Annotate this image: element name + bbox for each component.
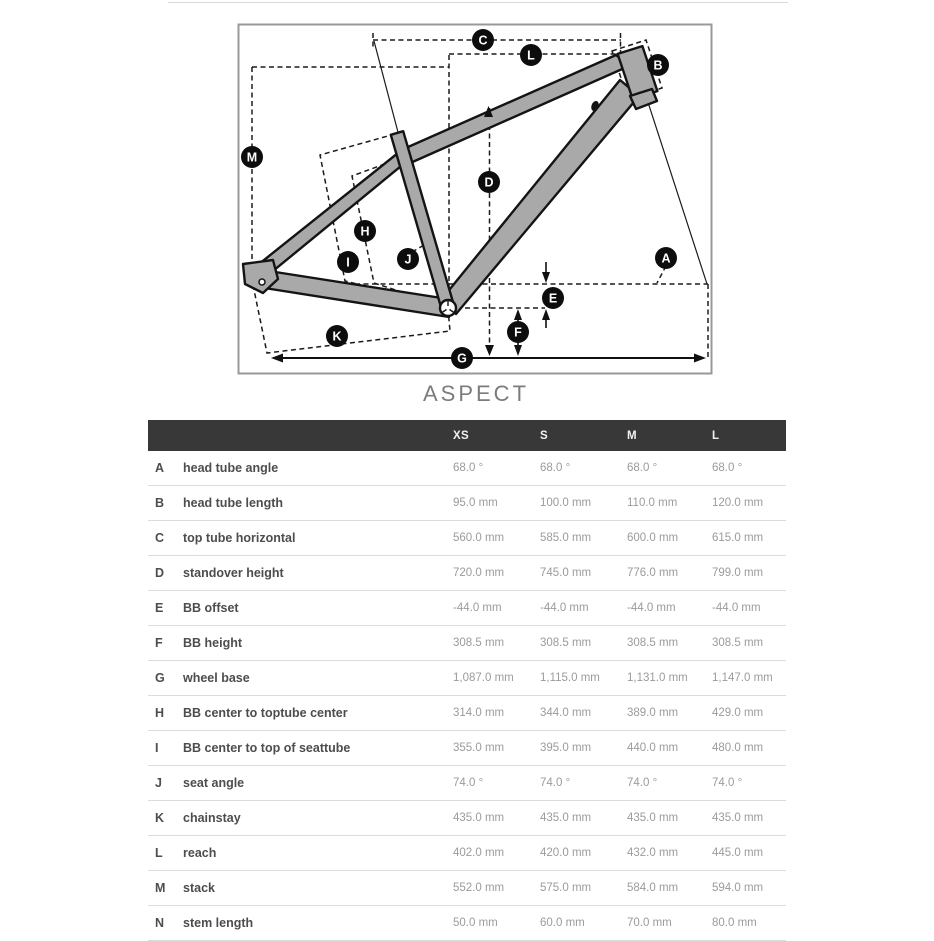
table-row-k: Kchainstay435.0 mm435.0 mm435.0 mm435.0 …: [148, 801, 786, 836]
row-value-m: 70.0 mm: [627, 917, 712, 929]
row-value-xs: 552.0 mm: [453, 882, 540, 894]
column-header-s: S: [540, 430, 627, 442]
row-value-m: 110.0 mm: [627, 497, 712, 509]
row-value-s: 745.0 mm: [540, 567, 627, 579]
row-value-l: 68.0 °: [712, 462, 786, 474]
dropout-hole: [259, 279, 265, 285]
row-value-xs: 50.0 mm: [453, 917, 540, 929]
row-value-s: 308.5 mm: [540, 637, 627, 649]
row-value-m: 432.0 mm: [627, 847, 712, 859]
svg-text:E: E: [549, 292, 557, 306]
geometry-table: XSSML Ahead tube angle68.0 °68.0 °68.0 °…: [148, 420, 786, 941]
row-value-s: 100.0 mm: [540, 497, 627, 509]
geometry-diagram-svg: CLBMDHIJAEFKG: [236, 22, 714, 376]
row-value-xs: 68.0 °: [453, 462, 540, 474]
badge-c: C: [472, 29, 494, 51]
table-row-i: IBB center to top of seattube355.0 mm395…: [148, 731, 786, 766]
row-label: BB offset: [183, 601, 453, 615]
table-row-a: Ahead tube angle68.0 °68.0 °68.0 °68.0 °: [148, 451, 786, 486]
row-value-s: 68.0 °: [540, 462, 627, 474]
row-value-m: -44.0 mm: [627, 602, 712, 614]
row-value-l: 74.0 °: [712, 777, 786, 789]
badge-f: F: [507, 321, 529, 343]
row-key: D: [148, 566, 183, 580]
row-label: chainstay: [183, 811, 453, 825]
svg-text:G: G: [457, 352, 467, 366]
row-key: I: [148, 741, 183, 755]
row-value-m: 1,131.0 mm: [627, 672, 712, 684]
badge-g: G: [451, 347, 473, 369]
table-row-b: Bhead tube length95.0 mm100.0 mm110.0 mm…: [148, 486, 786, 521]
badge-d: D: [478, 171, 500, 193]
row-label: standover height: [183, 566, 453, 580]
row-value-xs: 560.0 mm: [453, 532, 540, 544]
svg-text:F: F: [514, 326, 522, 340]
badge-e: E: [542, 287, 564, 309]
badge-a: A: [655, 247, 677, 269]
badge-k: K: [326, 325, 348, 347]
row-value-s: 420.0 mm: [540, 847, 627, 859]
row-value-s: 435.0 mm: [540, 812, 627, 824]
row-value-l: 594.0 mm: [712, 882, 786, 894]
row-key: A: [148, 461, 183, 475]
table-row-l: Lreach402.0 mm420.0 mm432.0 mm445.0 mm: [148, 836, 786, 871]
svg-text:K: K: [332, 330, 341, 344]
row-key: C: [148, 531, 183, 545]
row-label: stem length: [183, 916, 453, 930]
row-label: reach: [183, 846, 453, 860]
svg-text:L: L: [527, 49, 535, 63]
table-row-j: Jseat angle74.0 °74.0 °74.0 °74.0 °: [148, 766, 786, 801]
page-title: ASPECT: [238, 381, 714, 407]
row-value-s: 575.0 mm: [540, 882, 627, 894]
table-body: Ahead tube angle68.0 °68.0 °68.0 °68.0 °…: [148, 451, 786, 941]
row-value-m: 74.0 °: [627, 777, 712, 789]
row-value-m: 308.5 mm: [627, 637, 712, 649]
row-value-xs: 402.0 mm: [453, 847, 540, 859]
badge-l: L: [520, 44, 542, 66]
row-value-l: -44.0 mm: [712, 602, 786, 614]
row-value-xs: 720.0 mm: [453, 567, 540, 579]
row-value-xs: 74.0 °: [453, 777, 540, 789]
row-key: H: [148, 706, 183, 720]
row-label: stack: [183, 881, 453, 895]
table-row-c: Ctop tube horizontal560.0 mm585.0 mm600.…: [148, 521, 786, 556]
row-value-xs: 95.0 mm: [453, 497, 540, 509]
row-value-l: 80.0 mm: [712, 917, 786, 929]
badge-j: J: [397, 248, 419, 270]
row-value-m: 68.0 °: [627, 462, 712, 474]
svg-text:B: B: [653, 59, 662, 73]
row-label: BB center to toptube center: [183, 706, 453, 720]
svg-text:M: M: [247, 151, 257, 165]
row-label: BB center to top of seattube: [183, 741, 453, 755]
row-value-l: 480.0 mm: [712, 742, 786, 754]
page: { "page": { "title": "ASPECT" }, "colors…: [0, 0, 934, 934]
table-row-f: FBB height308.5 mm308.5 mm308.5 mm308.5 …: [148, 626, 786, 661]
row-label: head tube angle: [183, 461, 453, 475]
row-value-s: 585.0 mm: [540, 532, 627, 544]
table-row-e: EBB offset-44.0 mm-44.0 mm-44.0 mm-44.0 …: [148, 591, 786, 626]
svg-text:D: D: [484, 176, 493, 190]
badge-h: H: [354, 220, 376, 242]
row-key: F: [148, 636, 183, 650]
row-value-l: 308.5 mm: [712, 637, 786, 649]
row-label: head tube length: [183, 496, 453, 510]
row-value-m: 600.0 mm: [627, 532, 712, 544]
row-label: wheel base: [183, 671, 453, 685]
table-row-h: HBB center to toptube center314.0 mm344.…: [148, 696, 786, 731]
svg-text:A: A: [661, 252, 670, 266]
svg-text:H: H: [360, 225, 369, 239]
row-key: B: [148, 496, 183, 510]
row-key: J: [148, 776, 183, 790]
top-divider: [168, 2, 788, 3]
svg-text:J: J: [405, 253, 412, 267]
column-header-xs: XS: [453, 430, 540, 442]
row-value-xs: -44.0 mm: [453, 602, 540, 614]
row-value-s: 395.0 mm: [540, 742, 627, 754]
row-label: BB height: [183, 636, 453, 650]
row-value-xs: 308.5 mm: [453, 637, 540, 649]
row-value-s: -44.0 mm: [540, 602, 627, 614]
column-header-l: L: [712, 430, 786, 442]
table-header-row: XSSML: [148, 420, 786, 451]
row-value-xs: 314.0 mm: [453, 707, 540, 719]
row-key: M: [148, 881, 183, 895]
row-value-s: 60.0 mm: [540, 917, 627, 929]
row-value-l: 429.0 mm: [712, 707, 786, 719]
row-value-l: 615.0 mm: [712, 532, 786, 544]
row-value-l: 799.0 mm: [712, 567, 786, 579]
row-key: K: [148, 811, 183, 825]
row-value-m: 435.0 mm: [627, 812, 712, 824]
table-row-g: Gwheel base1,087.0 mm1,115.0 mm1,131.0 m…: [148, 661, 786, 696]
badge-i: I: [337, 251, 359, 273]
row-value-s: 1,115.0 mm: [540, 672, 627, 684]
column-header-m: M: [627, 430, 712, 442]
row-value-m: 584.0 mm: [627, 882, 712, 894]
row-value-m: 776.0 mm: [627, 567, 712, 579]
header-spacer: [148, 420, 453, 451]
row-value-m: 389.0 mm: [627, 707, 712, 719]
row-value-s: 74.0 °: [540, 777, 627, 789]
row-key: L: [148, 846, 183, 860]
row-value-xs: 355.0 mm: [453, 742, 540, 754]
row-value-xs: 435.0 mm: [453, 812, 540, 824]
svg-text:C: C: [478, 34, 487, 48]
bike-geometry-diagram: CLBMDHIJAEFKG: [236, 22, 714, 376]
row-value-l: 445.0 mm: [712, 847, 786, 859]
row-key: G: [148, 671, 183, 685]
row-key: E: [148, 601, 183, 615]
row-value-l: 120.0 mm: [712, 497, 786, 509]
table-row-m: Mstack552.0 mm575.0 mm584.0 mm594.0 mm: [148, 871, 786, 906]
row-key: N: [148, 916, 183, 930]
table-row-d: Dstandover height720.0 mm745.0 mm776.0 m…: [148, 556, 786, 591]
row-value-l: 1,147.0 mm: [712, 672, 786, 684]
table-row-n: Nstem length50.0 mm60.0 mm70.0 mm80.0 mm: [148, 906, 786, 941]
row-value-s: 344.0 mm: [540, 707, 627, 719]
svg-text:I: I: [346, 256, 349, 270]
badge-b: B: [647, 54, 669, 76]
badge-m: M: [241, 146, 263, 168]
row-value-xs: 1,087.0 mm: [453, 672, 540, 684]
row-label: seat angle: [183, 776, 453, 790]
row-value-m: 440.0 mm: [627, 742, 712, 754]
row-label: top tube horizontal: [183, 531, 453, 545]
row-value-l: 435.0 mm: [712, 812, 786, 824]
